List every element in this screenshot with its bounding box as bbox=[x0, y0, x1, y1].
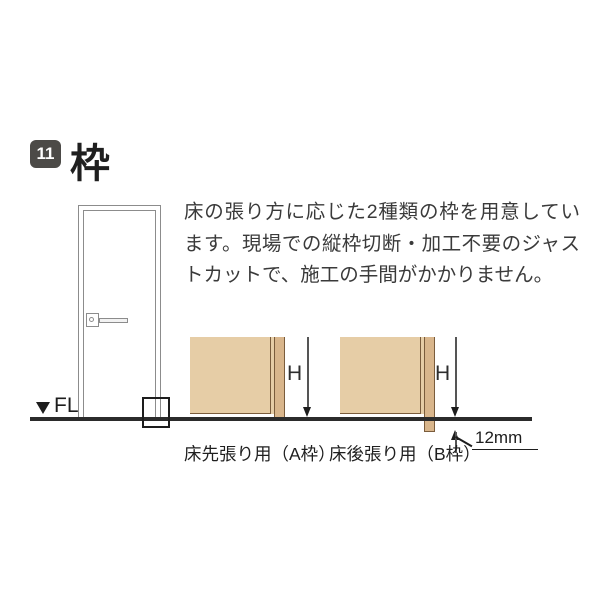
fl-marker-triangle-icon bbox=[36, 402, 50, 414]
detail-callout-box bbox=[142, 397, 170, 428]
frame-a-wall-section bbox=[190, 337, 271, 414]
frame-a-jamb bbox=[274, 337, 285, 420]
frame-b-down-arrow-icon bbox=[451, 407, 459, 417]
fl-label: FL bbox=[54, 394, 79, 418]
frame-a-down-arrow-icon bbox=[303, 407, 311, 417]
door-handle-pin bbox=[89, 317, 94, 322]
frame-a-caption: 床先張り用（A枠） bbox=[184, 441, 336, 466]
section-number-badge: 11 bbox=[30, 140, 61, 168]
catalog-page: 11 枠 床の張り方に応じた2種類の枠を用意しています。現場での縦枠切断・加工不… bbox=[0, 0, 600, 600]
frame-a-height-dimension-line bbox=[307, 337, 309, 409]
floor-line bbox=[30, 417, 532, 421]
frame-b-height-label: H bbox=[435, 362, 450, 386]
intro-paragraph: 床の張り方に応じた2種類の枠を用意しています。現場での縦枠切断・加工不要のジャス… bbox=[184, 197, 580, 292]
door-handle-rosette bbox=[86, 313, 99, 327]
frame-a-height-label: H bbox=[287, 362, 302, 386]
frame-b-offset-label: 12mm bbox=[472, 428, 538, 450]
door-handle-lever bbox=[99, 318, 128, 323]
frame-b-wall-section bbox=[340, 337, 421, 414]
section-title: 枠 bbox=[70, 131, 111, 189]
frame-b-caption: 床後張り用（B枠） bbox=[329, 441, 481, 466]
frame-b-height-dimension-line bbox=[455, 337, 457, 409]
